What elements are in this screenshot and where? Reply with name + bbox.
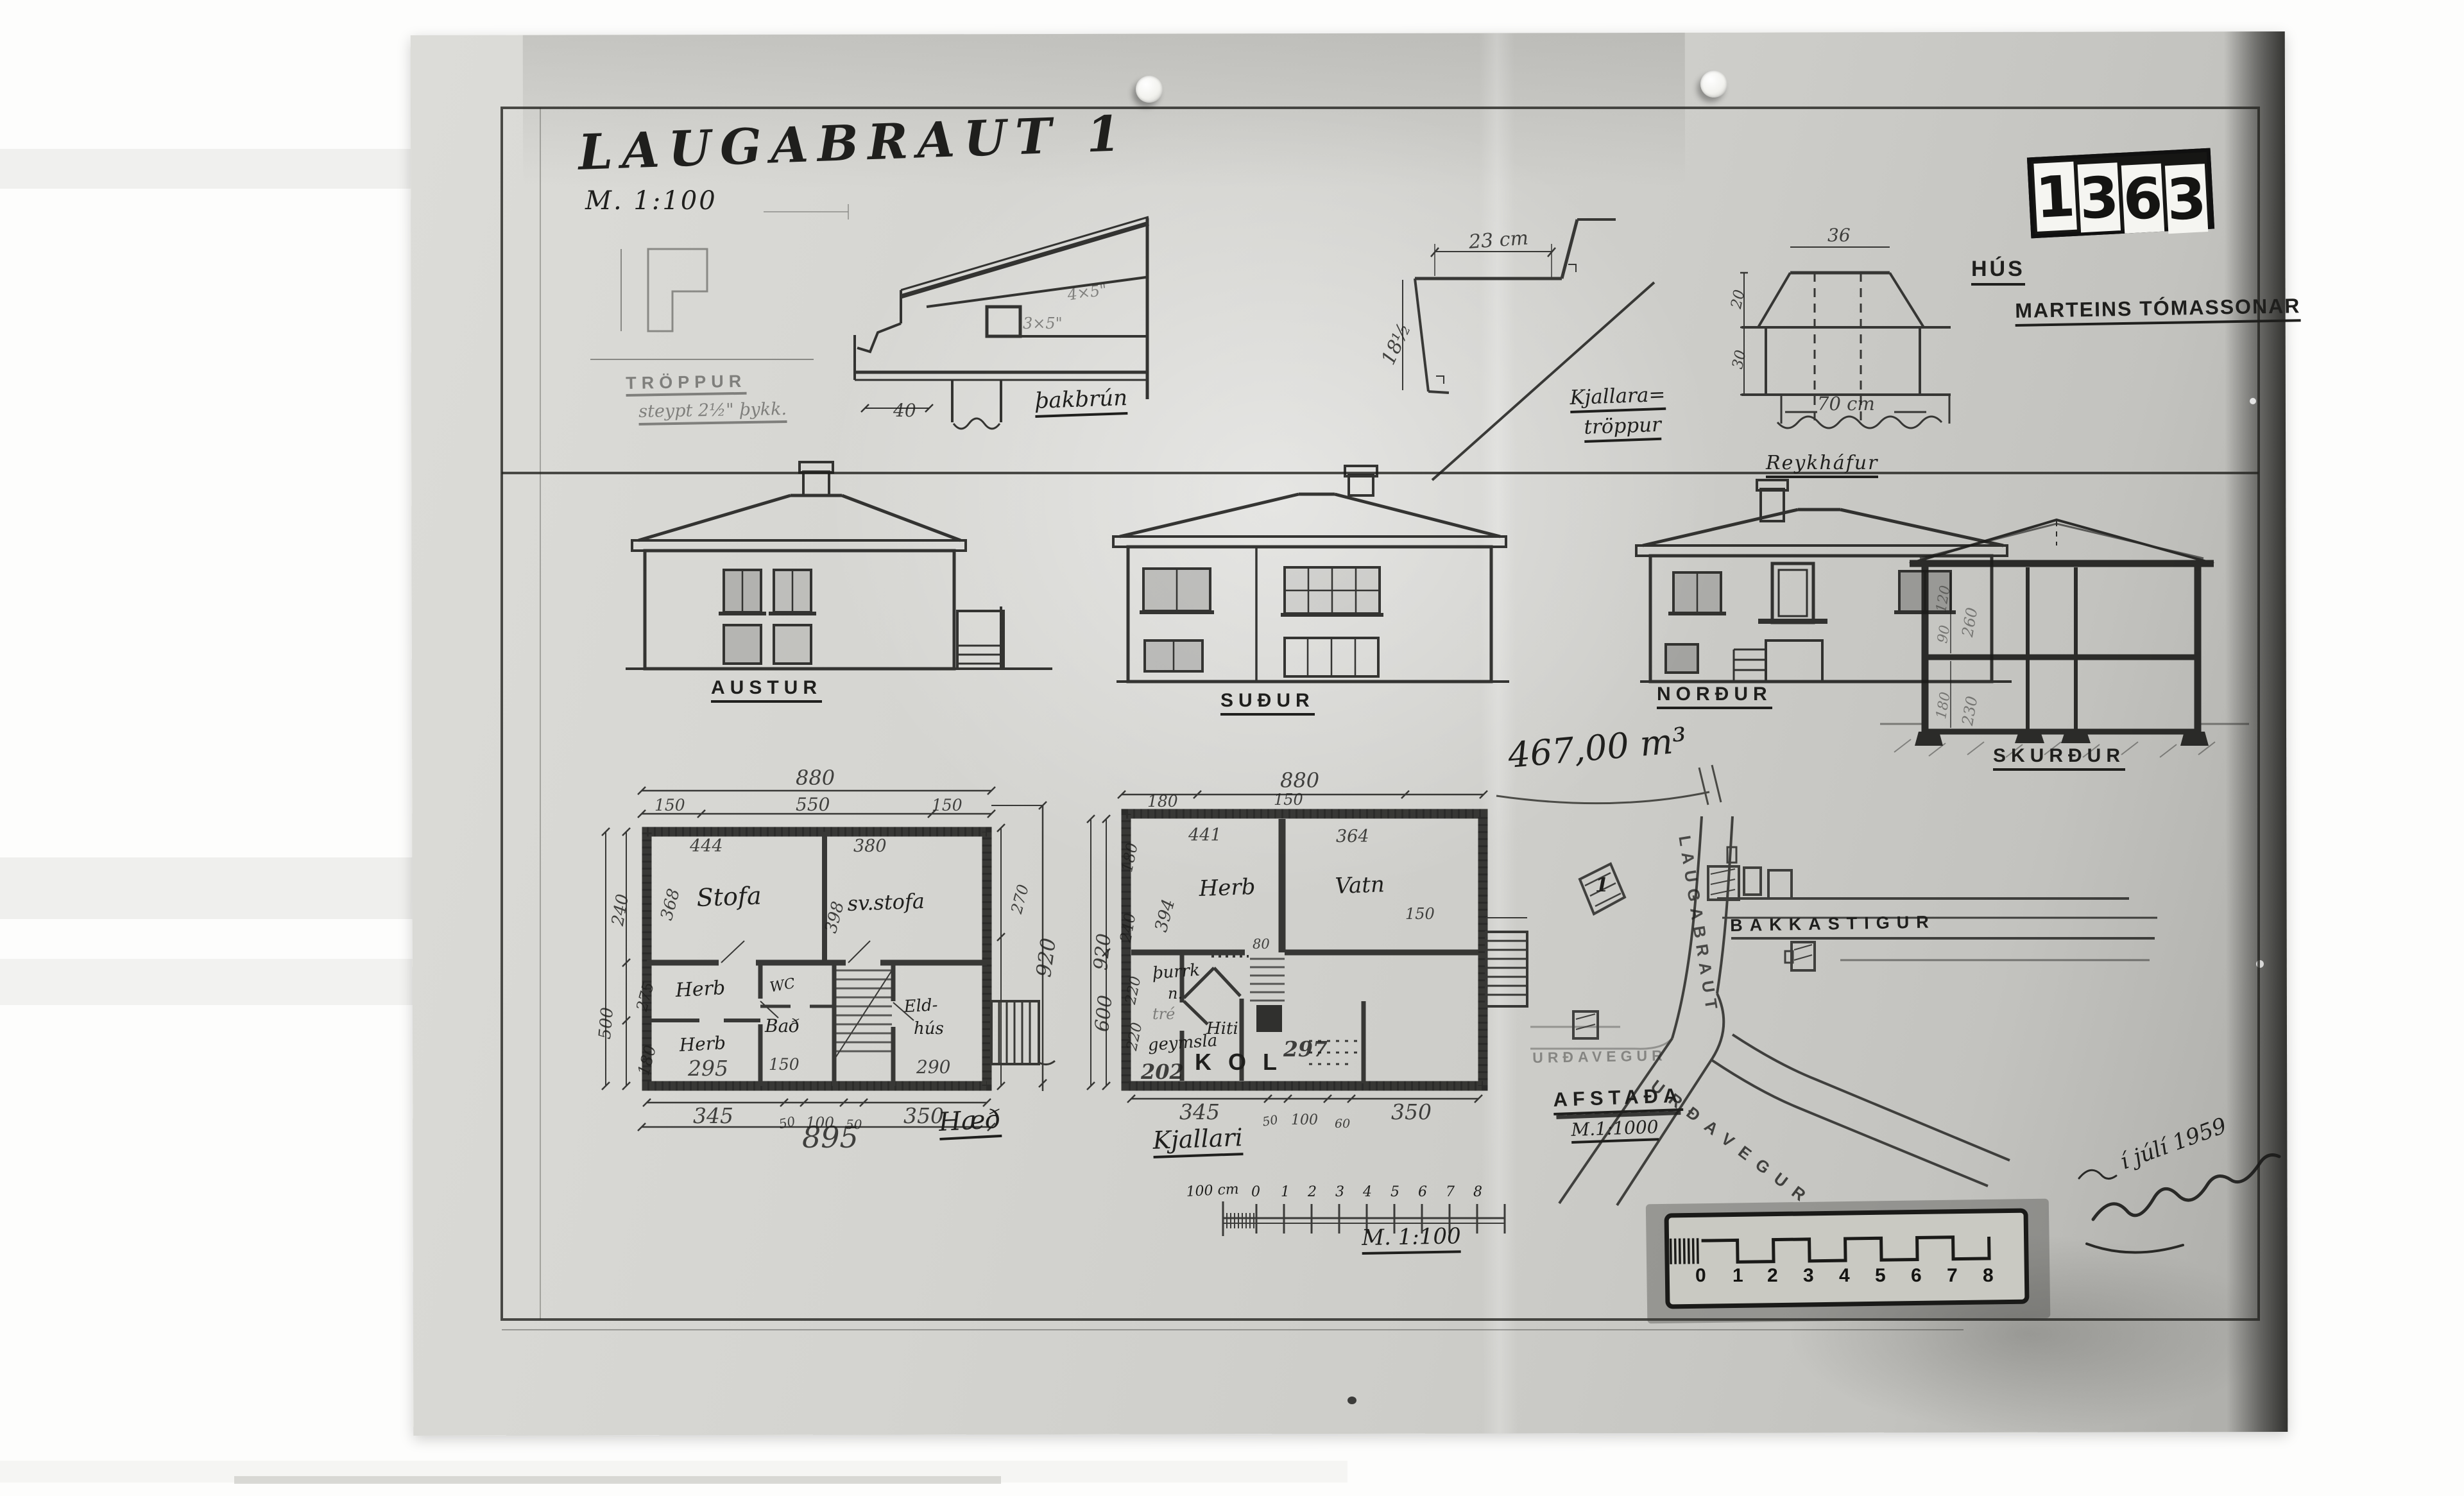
room-svstofa: sv.stofa bbox=[847, 891, 925, 915]
rafter-note-lower: 3×5" bbox=[1023, 316, 1063, 332]
ruler-number-0: 0 bbox=[1695, 1266, 1706, 1286]
chimney-side-dim-upper: 20 bbox=[1729, 288, 1748, 310]
scanned-blueprint-page: LAUGABRAUT 1 M. 1:100 1 3 6 3 HÚS MARTEI… bbox=[0, 0, 2464, 1496]
caption-east-elevation: AUSTUR bbox=[711, 678, 822, 703]
plan-dim-550: 550 bbox=[796, 795, 830, 814]
scalebar-tick-4: 4 bbox=[1363, 1185, 1372, 1199]
scalebar-tick-8: 8 bbox=[1473, 1185, 1482, 1199]
stair-detail-note: steypt 2½" þykk. bbox=[638, 400, 787, 426]
chimney-side-dim-lower: 30 bbox=[1730, 348, 1749, 370]
street-bakkastigur: BAKKASTIGUR bbox=[1730, 913, 1936, 934]
plot-number: 1 bbox=[1595, 875, 1609, 896]
room-eldhus-2: hús bbox=[914, 1020, 944, 1038]
room-herb-2: Herb bbox=[679, 1033, 726, 1054]
bplan-dim-350: 350 bbox=[1391, 1101, 1432, 1124]
bplan-dim-441: 441 bbox=[1188, 827, 1222, 845]
ruler-number-7: 7 bbox=[1947, 1266, 1958, 1286]
plan-dim-50a: 50 bbox=[778, 1115, 796, 1131]
photo-dark-edge bbox=[2224, 31, 2288, 1432]
plan-ground-caption: Hæð bbox=[938, 1106, 1002, 1140]
step-width-dim: 23 cm bbox=[1468, 228, 1529, 253]
mounting-pin-left bbox=[1136, 76, 1163, 103]
stamp-digit: 1 bbox=[2033, 162, 2076, 232]
chimney-bottom-dim: 70 cm bbox=[1817, 394, 1875, 413]
bplan-dim-100: 100 bbox=[1291, 1113, 1318, 1128]
scalebar-caption: M. 1:100 bbox=[1362, 1225, 1461, 1254]
room-herb-1: Herb bbox=[675, 978, 726, 1001]
scan-streak bbox=[0, 857, 416, 919]
plan-dim-880: 880 bbox=[796, 768, 835, 789]
street-urdavegur-west: URÐAVEGUR bbox=[1532, 1047, 1667, 1065]
caption-north-elevation: NORÐUR bbox=[1657, 684, 1772, 709]
plan-dim-150a: 150 bbox=[654, 797, 685, 814]
caption-section: SKURÐUR bbox=[1993, 746, 2125, 771]
broom-hiti: Hiti bbox=[1206, 1020, 1238, 1038]
plan-dim-345: 345 bbox=[693, 1105, 733, 1128]
broom-thurrk-1: þurrk bbox=[1152, 962, 1201, 983]
bplan-dim-180: 180 bbox=[1147, 793, 1178, 810]
broom-kol: K O L bbox=[1195, 1050, 1282, 1074]
scalebar-tick-3: 3 bbox=[1335, 1185, 1344, 1199]
scalebar-tick-5: 5 bbox=[1390, 1185, 1399, 1199]
bplan-dim-880: 880 bbox=[1280, 770, 1319, 792]
basement-stairs-label-2: tröppur bbox=[1584, 415, 1662, 443]
plan-dim-920: 920 bbox=[1033, 937, 1060, 979]
plan-dim-290: 290 bbox=[916, 1058, 950, 1076]
stamp-digit: 3 bbox=[2165, 164, 2208, 234]
broom-herb: Herb bbox=[1199, 876, 1256, 901]
plan-basement-caption: Kjallari bbox=[1152, 1125, 1244, 1158]
broom-tre: tré bbox=[1152, 1006, 1175, 1022]
stair-detail-label: TRÖPPUR bbox=[626, 372, 747, 397]
ruler-number-6: 6 bbox=[1911, 1266, 1922, 1286]
scalebar-tick-7: 7 bbox=[1446, 1185, 1455, 1199]
ruler-number-2: 2 bbox=[1767, 1266, 1778, 1286]
room-stofa: Stofa bbox=[696, 883, 762, 911]
plan-dim-500: 500 bbox=[597, 1007, 617, 1040]
plan-dim-895: 895 bbox=[802, 1122, 859, 1153]
roof-edge-dim: 40 bbox=[893, 401, 916, 420]
scalebar-pre-label: 100 cm bbox=[1186, 1182, 1239, 1199]
bplan-dim-600L: 600 bbox=[1092, 994, 1116, 1033]
scalebar-tick-2: 2 bbox=[1308, 1185, 1317, 1199]
mounting-pin-right bbox=[1700, 71, 1727, 98]
bplan-dim-920L: 920 bbox=[1091, 933, 1115, 971]
owner-title: HÚS bbox=[1971, 258, 2025, 286]
scalebar-tick-6: 6 bbox=[1418, 1185, 1427, 1199]
chimney-top-dim: 36 bbox=[1827, 226, 1851, 245]
bplan-dim-150: 150 bbox=[1274, 792, 1303, 808]
scan-streak bbox=[0, 1461, 1347, 1483]
room-bad: Bað bbox=[765, 1017, 800, 1035]
bplan-dim-50: 50 bbox=[1262, 1114, 1279, 1130]
ruler-number-8: 8 bbox=[1983, 1266, 1994, 1286]
scan-streak bbox=[234, 1476, 1001, 1484]
ruler-number-4: 4 bbox=[1839, 1266, 1850, 1286]
bplan-dim-60: 60 bbox=[1335, 1118, 1350, 1131]
ruler-number-3: 3 bbox=[1803, 1266, 1814, 1286]
bplan-dim-80: 80 bbox=[1253, 937, 1270, 951]
plan-dim-295: 295 bbox=[688, 1058, 728, 1080]
roof-edge-label: þakbrún bbox=[1034, 387, 1128, 418]
plan-dim-380: 380 bbox=[853, 838, 887, 855]
bplan-dim-345: 345 bbox=[1179, 1101, 1220, 1124]
scan-streak bbox=[0, 149, 420, 189]
ruler-number-5: 5 bbox=[1875, 1266, 1886, 1286]
photo-sheet bbox=[411, 31, 2288, 1436]
site-caption-scale: M.1:1000 bbox=[1571, 1117, 1659, 1144]
ruler-number-1: 1 bbox=[1733, 1266, 1743, 1286]
drawing-scale: M. 1:100 bbox=[585, 187, 717, 214]
bplan-dim-364: 364 bbox=[1336, 828, 1369, 846]
basement-stairs-label-1: Kjallara= bbox=[1570, 384, 1666, 413]
owner-name: MARTEINS TÓMASSONAR bbox=[2015, 295, 2301, 326]
stamp-digit: 3 bbox=[2078, 162, 2121, 232]
plan-dim-bad-150: 150 bbox=[769, 1056, 800, 1073]
broom-thurrk-2: n. bbox=[1168, 986, 1183, 1002]
scan-streak bbox=[0, 959, 416, 1005]
chimney-label: Reykháfur bbox=[1766, 453, 1878, 478]
bplan-dim-150R: 150 bbox=[1405, 906, 1435, 922]
bplan-dim-297: 297 bbox=[1283, 1038, 1328, 1061]
plan-dim-150b: 150 bbox=[932, 797, 963, 814]
photo-highlight bbox=[823, 89, 1725, 902]
archive-number-stamp: 1 3 6 3 bbox=[2027, 148, 2214, 239]
stamp-digit: 6 bbox=[2121, 164, 2164, 234]
section-dim-90: 90 bbox=[1935, 624, 1953, 644]
caption-south-elevation: SUÐUR bbox=[1220, 691, 1315, 716]
room-eldhus-1: Eld- bbox=[903, 997, 938, 1016]
scalebar-tick-0: 0 bbox=[1251, 1185, 1260, 1199]
plan-dim-444: 444 bbox=[690, 838, 723, 855]
scalebar-tick-1: 1 bbox=[1281, 1185, 1290, 1199]
broom-vatn: Vatn bbox=[1335, 873, 1385, 898]
bplan-dim-202: 202 bbox=[1141, 1062, 1184, 1083]
